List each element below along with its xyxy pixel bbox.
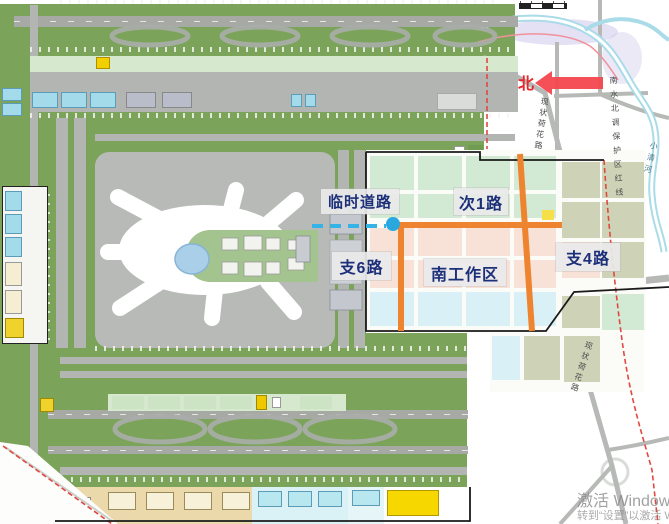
road-label-box: 临时道路 <box>321 189 399 214</box>
airport-master-plan-map: 临时道路次1路支6路南工作区支4路 北 现状荷花路 南水北调保护区红线 小清河 … <box>0 0 669 524</box>
road-label-box: 支6路 <box>332 252 391 280</box>
windows-activation-watermark-line2: 转到“设置”以激活 Windows。 <box>577 507 669 523</box>
road-label-boxes: 临时道路次1路支6路南工作区支4路 <box>0 0 669 524</box>
scale-bar <box>519 3 567 9</box>
road-label-box: 支4路 <box>556 243 620 271</box>
road-label-box: 次1路 <box>454 188 508 215</box>
road-label-box: 南工作区 <box>424 259 506 286</box>
north-label: 北 <box>518 70 534 94</box>
